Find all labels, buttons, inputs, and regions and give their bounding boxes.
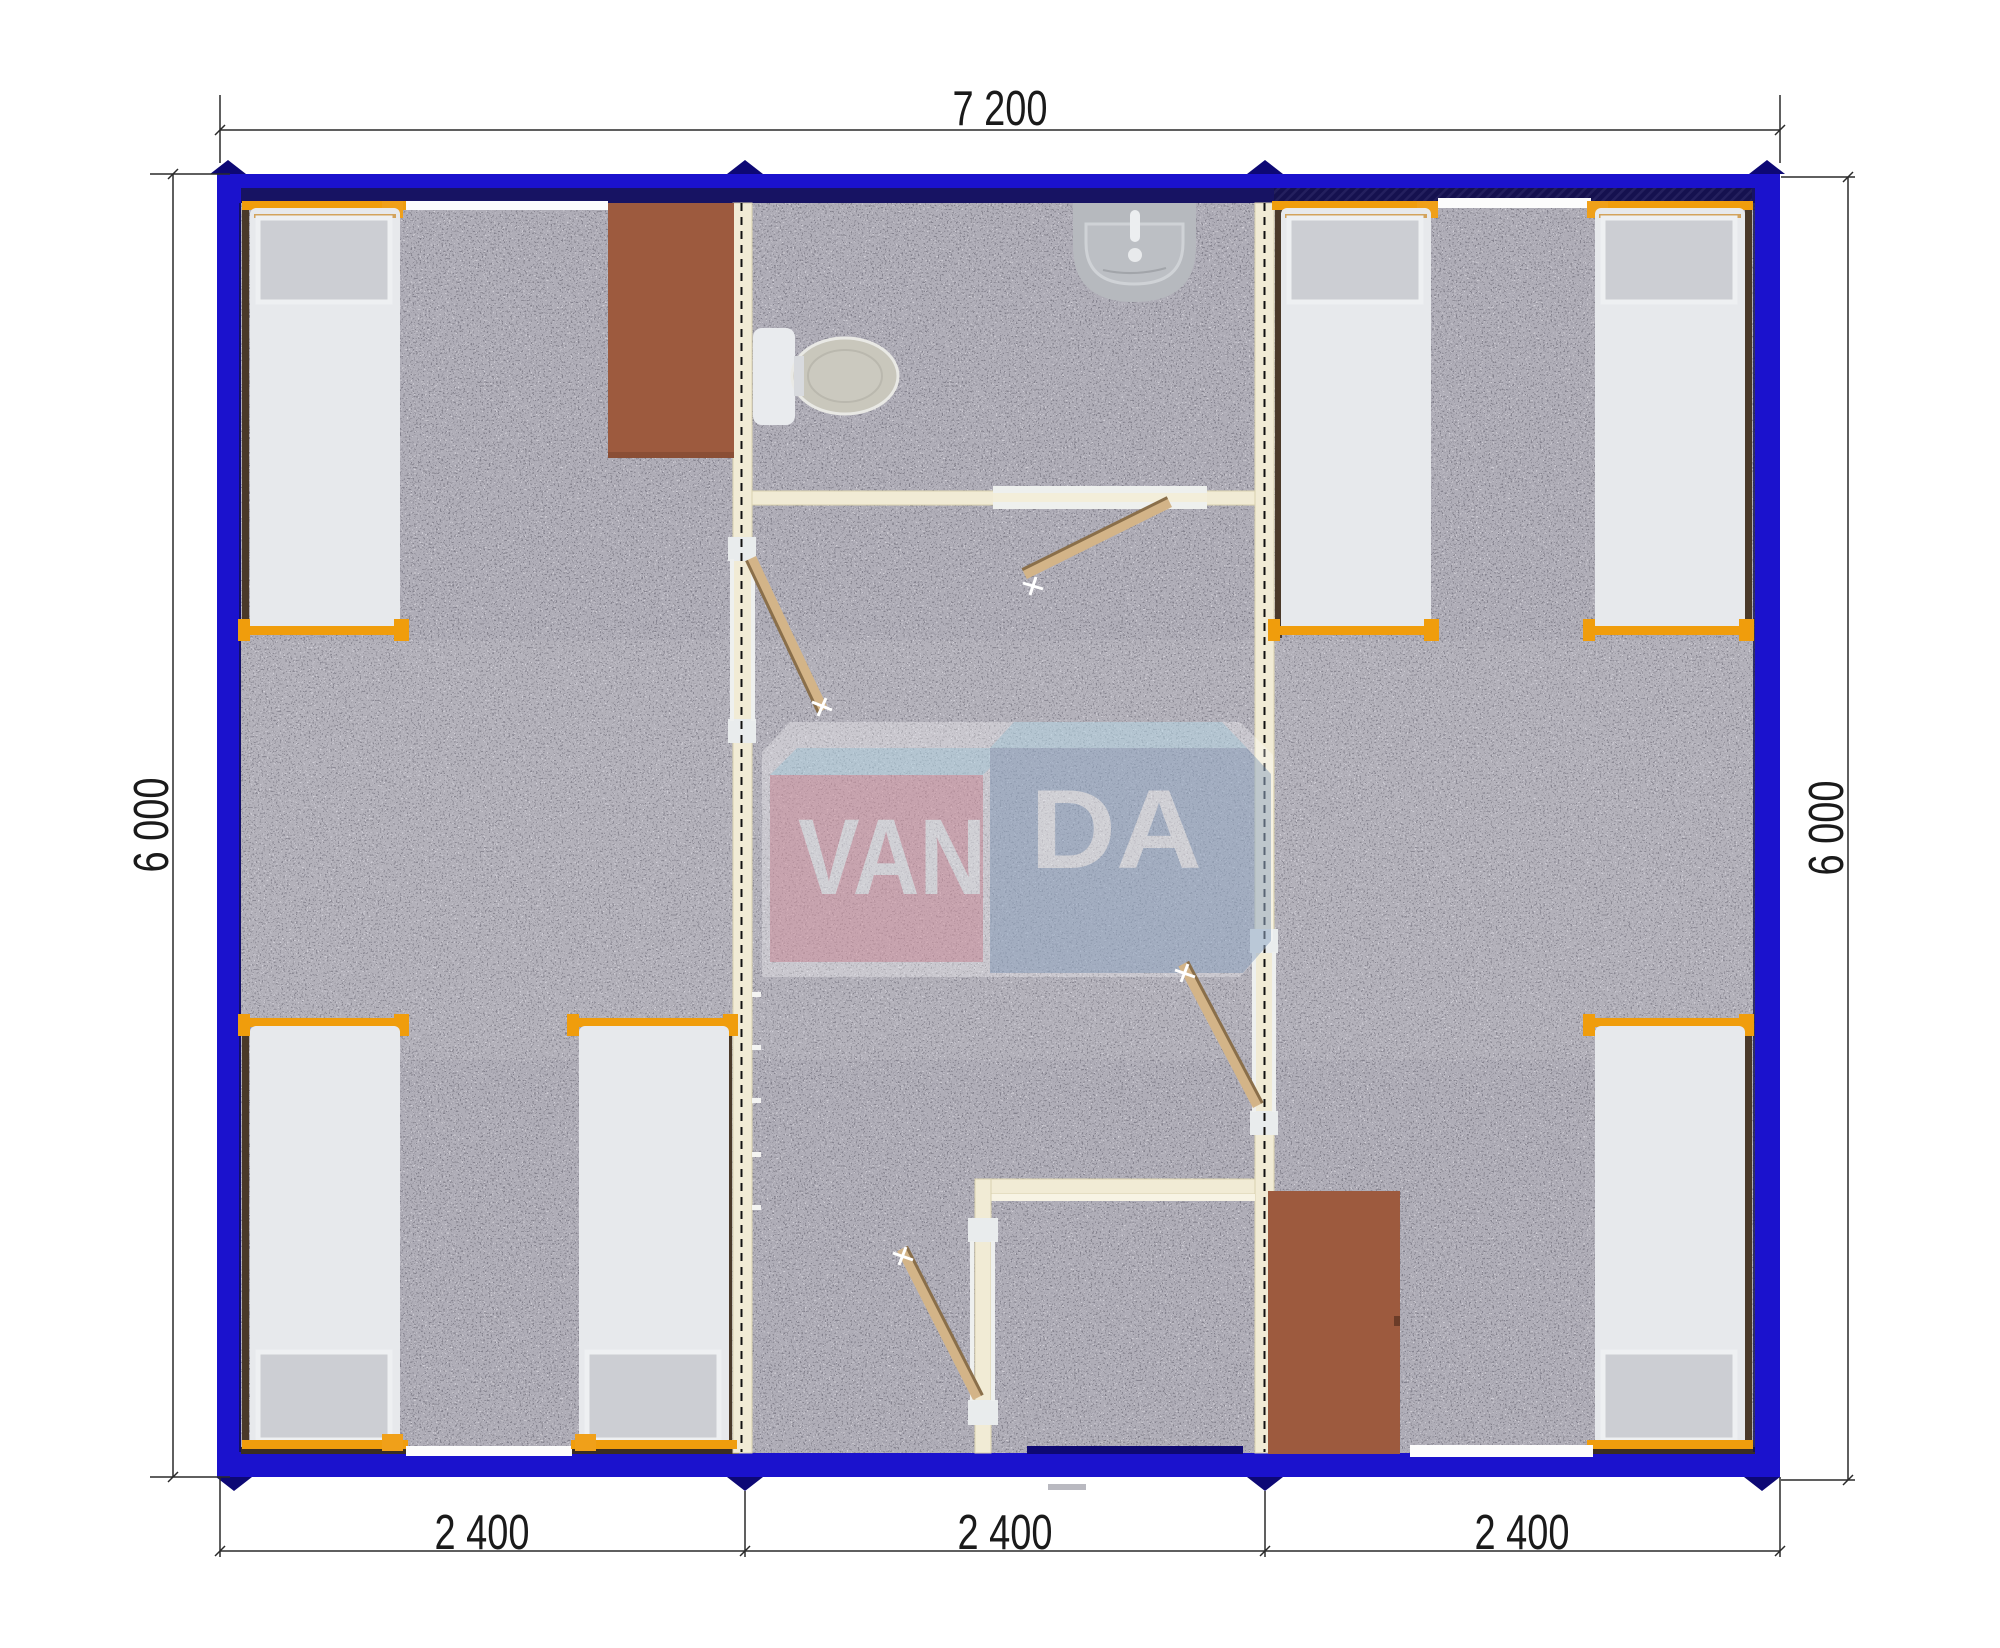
svg-text:2 400: 2 400 — [958, 1506, 1053, 1560]
svg-text:2 400: 2 400 — [1475, 1506, 1570, 1560]
svg-text:6 000: 6 000 — [125, 778, 179, 873]
svg-text:2 400: 2 400 — [435, 1506, 530, 1560]
svg-text:6 000: 6 000 — [1800, 781, 1854, 876]
svg-text:7 200: 7 200 — [953, 82, 1048, 136]
svg-text:DA: DA — [1030, 767, 1202, 892]
svg-text:VAN: VAN — [798, 796, 986, 917]
